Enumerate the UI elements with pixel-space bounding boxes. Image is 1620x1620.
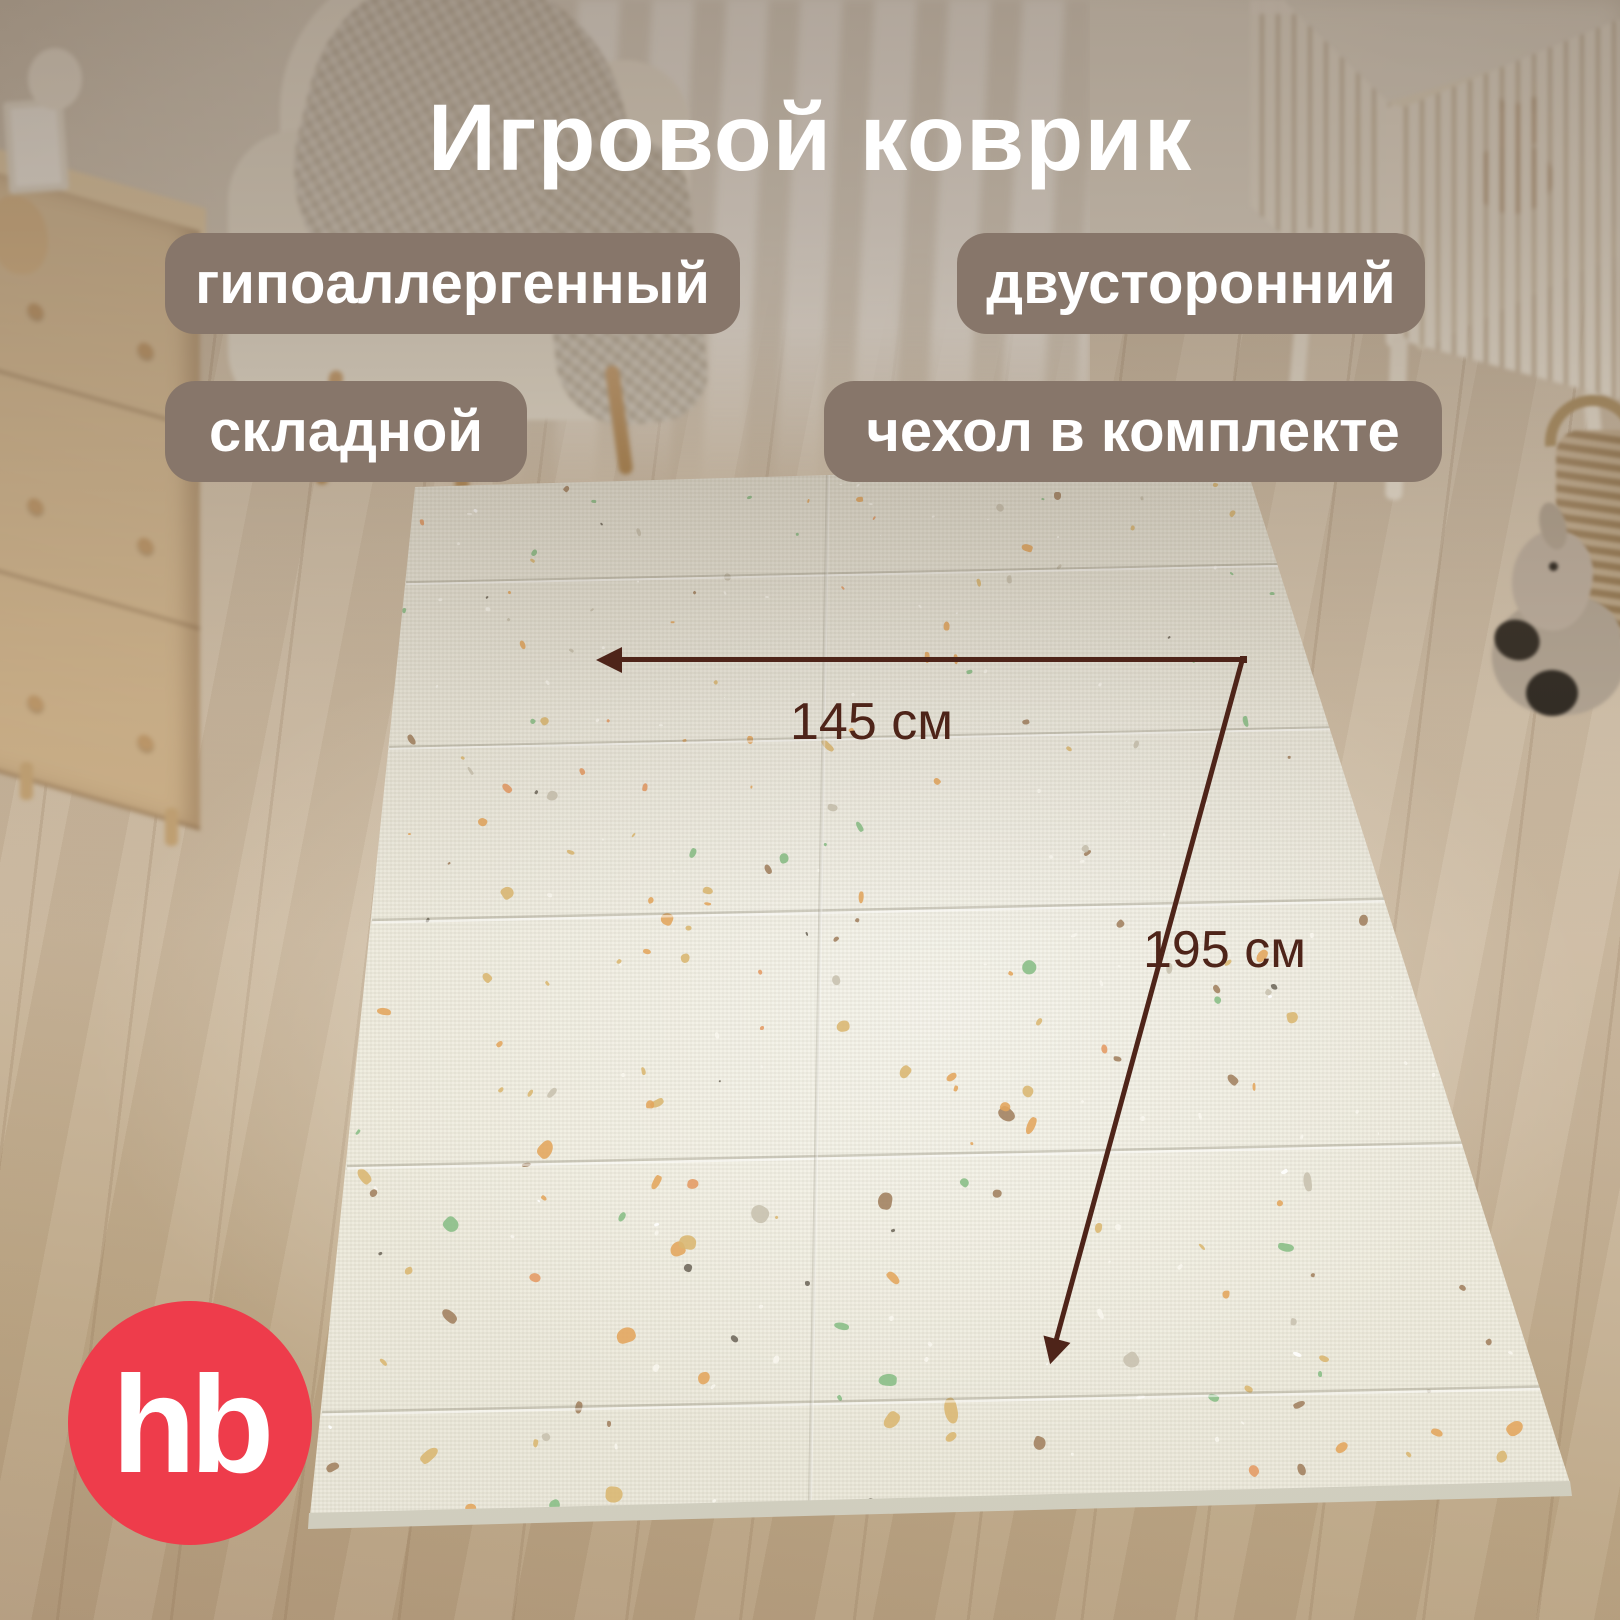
plush-toy-eye — [1549, 562, 1558, 571]
dresser-knob — [28, 496, 43, 515]
width-arrow — [622, 657, 1245, 662]
dresser-knob — [28, 693, 43, 712]
dresser-knob — [28, 301, 43, 320]
feature-badge-foldable: складной — [165, 381, 527, 482]
mat-fold-line — [406, 563, 1282, 585]
arrowhead-left-icon — [596, 647, 622, 673]
mat-fold-line — [322, 1385, 1544, 1416]
page-title: Игровой коврик — [0, 84, 1620, 193]
dresser-knob — [138, 536, 153, 555]
plush-toy-hoof — [1526, 670, 1578, 716]
dresser-knob — [138, 733, 153, 752]
feature-badge-cover-included: чехол в комплекте — [824, 381, 1442, 482]
dresser-leg — [20, 762, 33, 800]
feature-badge-hypoallergenic: гипоаллергенный — [165, 233, 740, 334]
brand-logo: hb — [68, 1301, 312, 1545]
brand-logo-text: hb — [112, 1346, 269, 1505]
width-dimension-label: 145 см — [790, 692, 953, 752]
product-card: Игровой коврик гипоаллергенный двусторон… — [0, 0, 1620, 1620]
dresser-leg — [165, 808, 178, 846]
mat-fold-line — [347, 1141, 1466, 1169]
dresser-knob — [138, 341, 153, 360]
mat-center-fold — [808, 468, 830, 1508]
length-dimension-label: 195 см — [1143, 920, 1306, 980]
feature-badge-double-sided: двусторонний — [957, 233, 1425, 334]
